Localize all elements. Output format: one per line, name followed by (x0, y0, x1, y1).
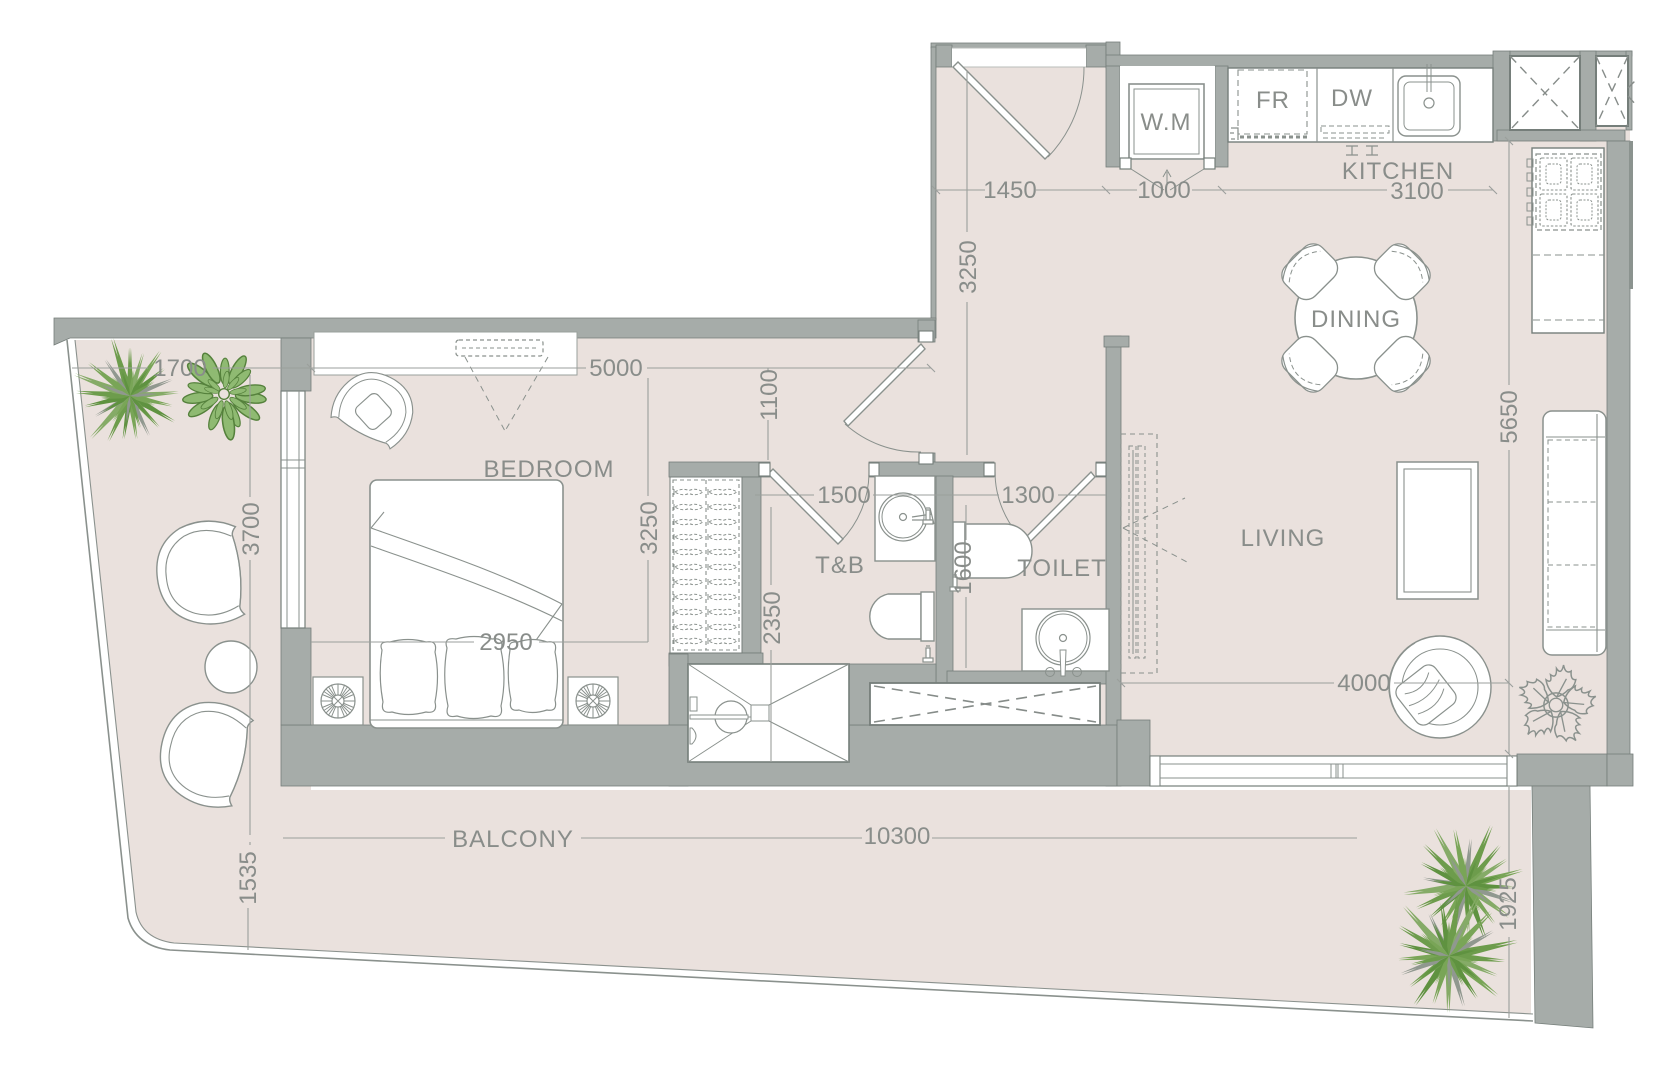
svg-text:2350: 2350 (759, 591, 786, 644)
svg-text:1700: 1700 (153, 355, 206, 382)
svg-text:W.M: W.M (1141, 109, 1192, 136)
svg-text:DINING: DINING (1311, 306, 1401, 333)
svg-text:T&B: T&B (815, 552, 865, 579)
svg-text:KITCHEN: KITCHEN (1342, 158, 1454, 185)
svg-text:1450: 1450 (983, 177, 1036, 204)
svg-text:10300: 10300 (864, 823, 931, 850)
svg-text:BEDROOM: BEDROOM (483, 456, 614, 483)
svg-text:1300: 1300 (1001, 482, 1054, 509)
svg-text:4000: 4000 (1337, 670, 1390, 697)
svg-text:BALCONY: BALCONY (452, 826, 574, 853)
svg-text:FR: FR (1256, 87, 1290, 114)
svg-text:5000: 5000 (589, 355, 642, 382)
svg-text:5650: 5650 (1496, 390, 1523, 443)
svg-text:1535: 1535 (235, 851, 262, 904)
svg-text:1000: 1000 (1137, 177, 1190, 204)
svg-text:1500: 1500 (817, 482, 870, 509)
svg-text:1600: 1600 (950, 541, 977, 594)
svg-text:DW: DW (1331, 85, 1373, 112)
svg-text:2950: 2950 (479, 629, 532, 656)
svg-text:TOILET: TOILET (1017, 555, 1107, 582)
svg-text:3250: 3250 (636, 501, 663, 554)
svg-text:1100: 1100 (756, 369, 783, 421)
svg-text:LIVING: LIVING (1241, 525, 1326, 552)
svg-text:3250: 3250 (955, 240, 982, 293)
svg-text:1925: 1925 (1495, 877, 1522, 930)
svg-text:3700: 3700 (238, 502, 265, 555)
